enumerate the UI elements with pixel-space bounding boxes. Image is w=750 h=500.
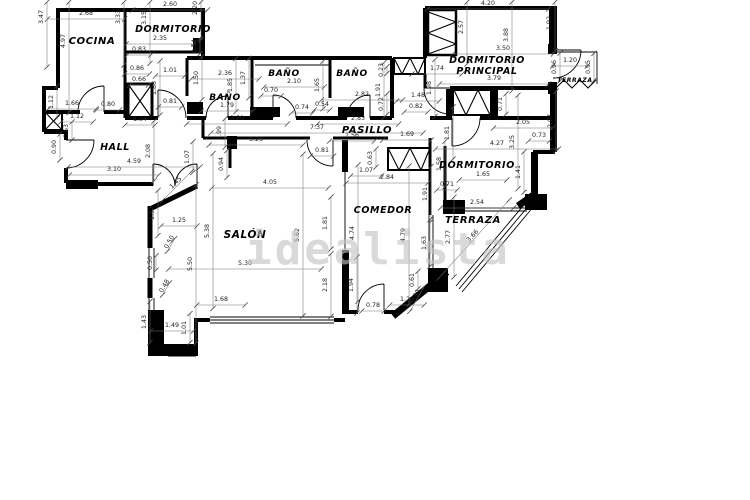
fixture: [250, 107, 280, 117]
room-label: COMEDOR: [354, 205, 412, 216]
dimension-label: 0.86: [130, 65, 144, 72]
dimension-label: 0.54: [191, 39, 198, 53]
dimension-label: 0.78: [366, 302, 380, 309]
dimension-label: 1.91: [375, 83, 382, 97]
dimension-label: 7.37: [310, 124, 324, 131]
dimension-label: 1.43: [141, 315, 148, 329]
dimension-label: 1.74: [430, 65, 444, 72]
dimension-tick: [507, 197, 512, 202]
dimension-label: 3.26: [249, 136, 263, 143]
dimension-label: 2.05: [516, 119, 530, 126]
dimension-label: 2.10: [287, 78, 301, 85]
dimension-label: 0.23: [378, 63, 385, 77]
dimension-label: 2.68: [79, 10, 93, 17]
dimension-label: 4.27: [490, 140, 504, 147]
dimension-label: 1.37: [240, 71, 247, 85]
dimension-label: 1.01: [181, 321, 188, 335]
dimension-label: 1.65: [476, 171, 490, 178]
floor-plan: 2.683.474.973.333.152.602.202.350.540.83…: [0, 0, 750, 500]
dimension-label: 2.08: [145, 144, 152, 158]
dimension-label: 0.83: [132, 46, 146, 53]
room-label: BAÑO: [336, 68, 367, 79]
dimension-tick: [407, 309, 412, 314]
dimension-label: 2.07: [547, 114, 554, 128]
dimension-label: 4.20: [481, 0, 495, 7]
dimension-label: 2.84: [380, 174, 394, 181]
dimension-label: 0.66: [132, 76, 146, 83]
room-label: BAÑO: [268, 68, 299, 79]
dimension-label: 2.54: [470, 199, 484, 206]
dimension-label: 1.88: [151, 81, 158, 95]
dimension-label: 1.57: [149, 206, 156, 220]
dimension-label: 2.35: [153, 35, 167, 42]
dimension-label: 5.50: [187, 257, 194, 271]
dimension-label: 2.20: [192, 1, 199, 15]
dimension-label: 1.69: [400, 131, 414, 138]
dimension-label: 5.38: [204, 224, 211, 238]
fixture: [187, 102, 203, 114]
dimension-label: 1.07: [359, 167, 373, 174]
room-label: PASILLO: [342, 125, 392, 136]
dimension-label: 1.65: [314, 78, 321, 92]
shaft-left: [45, 112, 62, 130]
dimension-label: 0.71: [497, 97, 504, 111]
dimension-label: 0.96: [551, 60, 558, 74]
dimension-label: 0.50: [163, 234, 176, 250]
dimension-label: 2.82: [355, 91, 369, 98]
dimension-label: 0.54: [315, 101, 329, 108]
dimension-label: 0.63: [63, 124, 70, 138]
wall-chunk: [548, 82, 557, 94]
dimension-label: 0.94: [218, 157, 225, 171]
dimension-label: 1.04: [133, 116, 147, 123]
dimension-label: 1.91: [422, 187, 429, 201]
dimension-label: 1.94: [348, 278, 355, 292]
wall-chunk: [342, 140, 348, 172]
dimension-label: 1.41: [515, 165, 522, 179]
dimension-label: 0.48: [158, 278, 171, 294]
dimension-label: 0.73: [532, 132, 546, 139]
closet-principal-sur: [447, 90, 497, 115]
dimension-label: 0.81: [163, 98, 177, 105]
dimension-label: 0.63: [367, 151, 374, 165]
dimension-label: 1.48: [411, 92, 425, 99]
wall-chunk: [531, 152, 538, 194]
dimension-label: 0.95: [585, 60, 592, 74]
wall-chunk: [66, 180, 98, 189]
dimension-label: 2.18: [322, 278, 329, 292]
room-label: DORMITORIO: [135, 24, 211, 35]
dimension-label: 1.66: [65, 100, 79, 107]
dimension-label: 2.36: [218, 70, 232, 77]
dimension-label: 3.47: [38, 10, 45, 24]
dimension-label: 0.82: [409, 103, 423, 110]
window: [210, 317, 334, 323]
dimension-label: 1.68: [214, 296, 228, 303]
dimension-label: 1.01: [163, 67, 177, 74]
dimension-label: 1.85: [227, 78, 234, 92]
dimension-label: 1.81: [444, 126, 451, 140]
wall-chunk: [148, 344, 196, 356]
dimension-label: 1.12: [48, 95, 55, 109]
watermark: idealista: [245, 224, 510, 275]
dimension-label: 0.81: [315, 147, 329, 154]
dimension-label: 1.92: [546, 16, 553, 30]
dimension-label: 1.98: [426, 81, 433, 95]
dimension-label: 3.15: [141, 11, 148, 25]
dimension-label: 0.61: [409, 273, 416, 287]
dimension-label: 1.45: [169, 176, 184, 191]
room-label: DORMITORIO: [449, 55, 525, 66]
dimension-label: 3.33: [115, 10, 122, 24]
door-hall: [66, 140, 94, 168]
dimension-label: 1.20: [563, 57, 577, 64]
dimension-label: 0.80: [101, 101, 115, 108]
closet-principal-vertical: [428, 10, 456, 55]
dimension-label: 4.97: [60, 34, 67, 48]
dimension-label: 3.50: [230, 115, 244, 122]
dimension-label: 3.25: [509, 135, 516, 149]
room-label: HALL: [100, 142, 130, 153]
room-label: COCINA: [69, 36, 116, 47]
dimension-label: 1.50: [193, 71, 200, 85]
dimension-label: 2.83: [351, 115, 365, 122]
dimension-label: 1.79: [220, 102, 234, 109]
dimension-label: 4.05: [263, 179, 277, 186]
dimension-label: 1.25: [172, 217, 186, 224]
dimension-label: 3.50: [496, 45, 510, 52]
dimension-label: 2.57: [458, 20, 465, 34]
dimension-label: 0.71: [440, 181, 454, 188]
wall-chunk: [548, 44, 557, 54]
dimension-label: 3.88: [503, 28, 510, 42]
dimension-label: 3.10: [107, 166, 121, 173]
dimension-label: 1.07: [184, 150, 191, 164]
room-label: PRINCIPAL: [456, 66, 517, 77]
room-label: DORMITORIO: [439, 160, 515, 171]
window: [465, 208, 527, 211]
dimension-label: 0.72: [378, 97, 385, 111]
dimension-label: 0.70: [264, 87, 278, 94]
dimension-label: 0.90: [51, 140, 58, 154]
closet-pasillo-top: [394, 58, 425, 74]
dimension-label: 0.74: [295, 104, 309, 111]
dimension-label: 4.59: [127, 158, 141, 165]
room-label: BAÑO: [209, 92, 240, 103]
dimension-label: 0.50: [147, 256, 154, 270]
dimension-label: 2.60: [163, 1, 177, 8]
dimension-tick: [189, 169, 194, 174]
door-dormitorio-dcha: [452, 118, 480, 146]
room-label: TERRAZA: [557, 77, 592, 84]
dimension-label: 1.12: [70, 113, 84, 120]
dimension-label: 1.49: [165, 322, 179, 329]
elevator-shaft: [128, 84, 152, 118]
door-cocina: [78, 86, 104, 112]
dimension-label: 0.99: [216, 126, 223, 140]
